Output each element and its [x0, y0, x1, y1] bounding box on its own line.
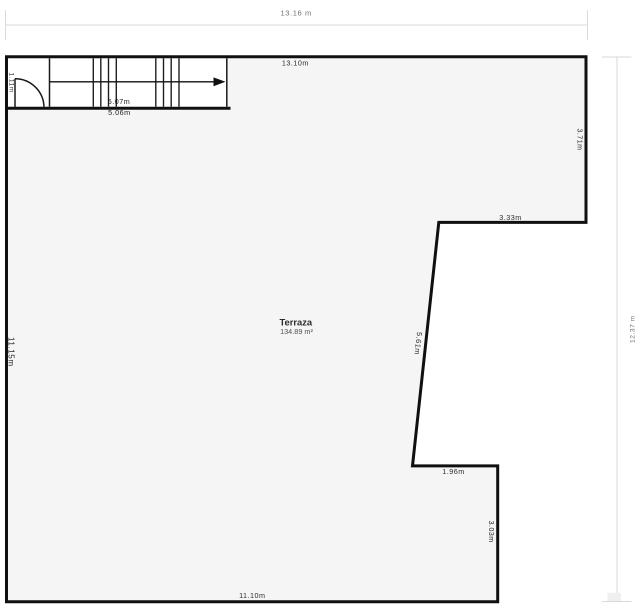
svg-text:3.33m: 3.33m [499, 213, 521, 222]
svg-text:134.89 m²: 134.89 m² [280, 327, 313, 336]
svg-text:Terraza: Terraza [279, 316, 312, 327]
svg-text:13.16 m: 13.16 m [281, 8, 312, 17]
svg-text:3.71m: 3.71m [575, 129, 582, 151]
svg-text:13.10m: 13.10m [282, 58, 309, 67]
svg-text:3.03m: 3.03m [487, 521, 494, 543]
svg-text:5.07m: 5.07m [108, 97, 130, 106]
svg-text:11.10m: 11.10m [239, 591, 265, 600]
svg-text:11.15m: 11.15m [7, 337, 16, 367]
svg-text:1.96m: 1.96m [442, 467, 464, 476]
svg-text:12.37 m: 12.37 m [629, 315, 636, 343]
svg-text:5.06m: 5.06m [108, 108, 130, 117]
svg-text:1.11m: 1.11m [8, 72, 15, 92]
